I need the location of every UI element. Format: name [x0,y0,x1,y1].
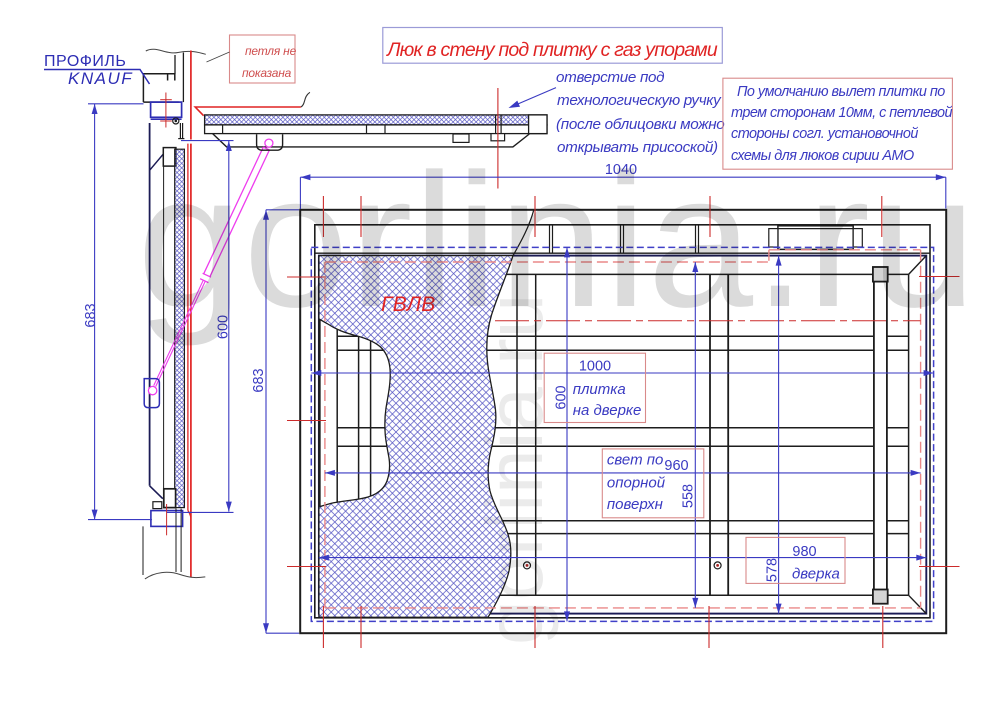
svg-text:(после облицовки можно: (после облицовки можно [556,116,724,133]
svg-text:960: 960 [664,458,688,474]
svg-text:gorlinia.ru: gorlinia.ru [470,294,559,645]
svg-text:на дверке: на дверке [573,402,642,419]
svg-text:683: 683 [83,303,99,327]
svg-text:683: 683 [251,368,267,392]
svg-text:По умолчанию вылет плитки по: По умолчанию вылет плитки по [737,84,945,100]
svg-text:плитка: плитка [573,381,626,398]
svg-text:ПРОФИЛЬ: ПРОФИЛЬ [44,53,126,70]
svg-text:980: 980 [792,544,816,560]
svg-text:дверка: дверка [792,566,840,583]
svg-text:KNAUF: KNAUF [68,69,133,88]
svg-text:558: 558 [681,484,697,508]
svg-text:отверстие под: отверстие под [556,69,664,86]
svg-text:поверхн: поверхн [607,496,663,513]
svg-text:опорной: опорной [607,475,666,492]
svg-text:технологическую ручку: технологическую ручку [557,92,722,109]
svg-text:Люк в стену под плитку с газ у: Люк в стену под плитку с газ упорами [385,39,718,61]
svg-text:показана: показана [242,66,292,80]
svg-text:трем сторонам 10мм, с петлевой: трем сторонам 10мм, с петлевой [731,105,953,121]
svg-text:петля не: петля не [245,44,297,58]
svg-text:578: 578 [765,558,781,582]
svg-text:1000: 1000 [579,359,611,375]
svg-text:свет по: свет по [607,451,663,468]
